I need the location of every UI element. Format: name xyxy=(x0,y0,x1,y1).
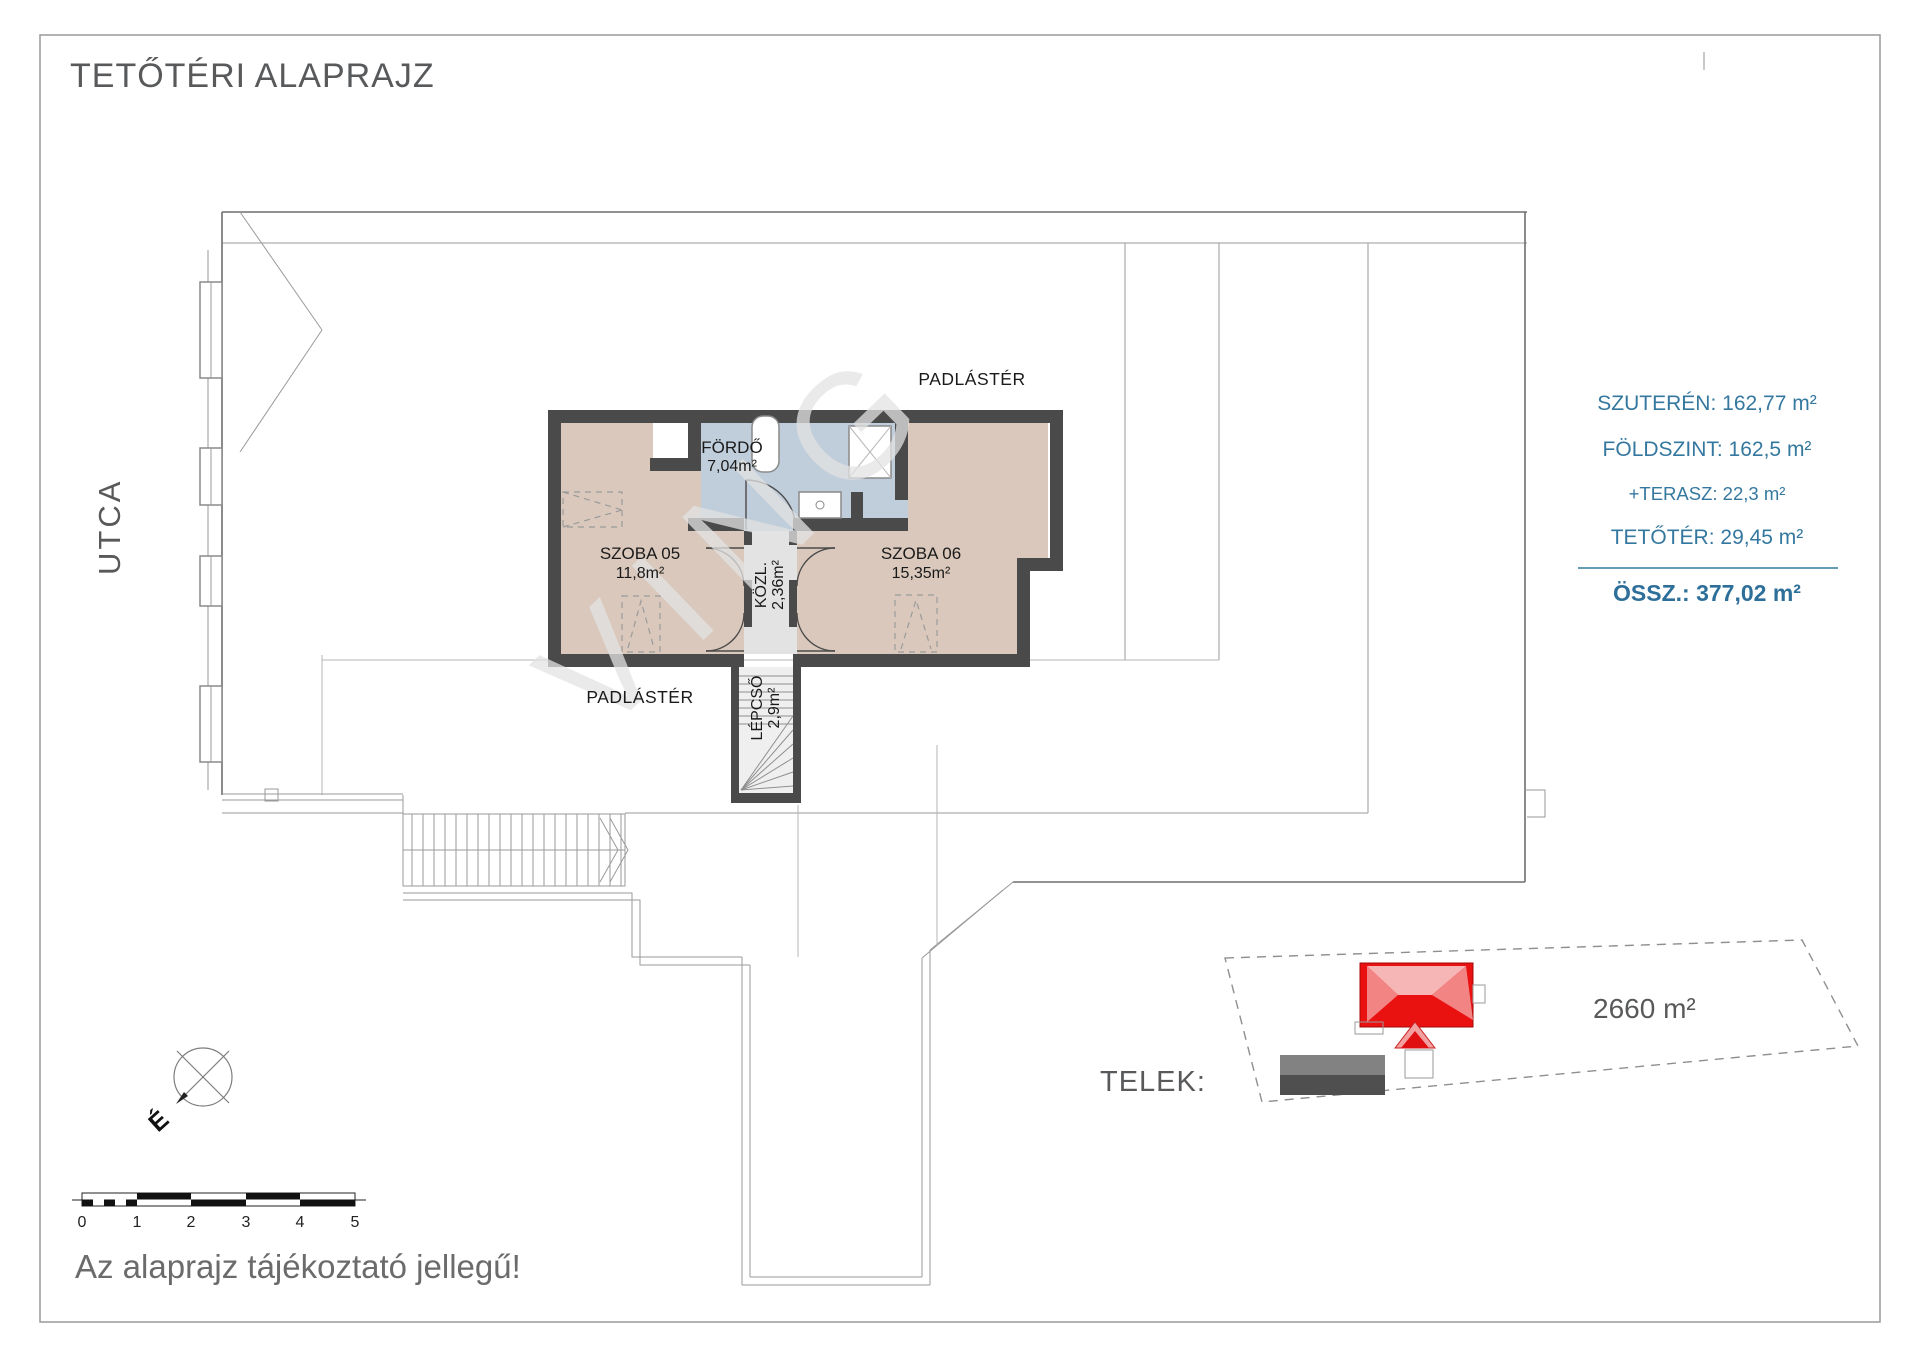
room-lepcso-area: 2,9m² xyxy=(766,687,783,729)
outdoor-stairs xyxy=(403,795,628,886)
street-label: UTCA xyxy=(92,479,127,575)
svg-text:2: 2 xyxy=(187,1214,196,1231)
scale-labels: 0 1 2 3 4 5 xyxy=(78,1214,360,1231)
site-label: TELEK: xyxy=(1100,1066,1206,1098)
attic-label-top: PADLÁSTÉR xyxy=(918,369,1025,389)
outbuilding-icon xyxy=(1280,1055,1385,1095)
room-bath-name: FÖRDŐ xyxy=(701,438,762,457)
room-szoba05-area: 11,8m² xyxy=(616,565,665,582)
page-title: TETŐTÉRI ALAPRAJZ xyxy=(70,57,435,95)
summary-tetoter: TETŐTÉR: 29,45 m² xyxy=(1611,526,1804,549)
attic-label-bottom: PADLÁSTÉR xyxy=(586,687,693,707)
floor-plan-drawing: VING FÖRDŐ 7,04m² SZOBA 05 11,8m² SZOBA … xyxy=(0,0,1920,1357)
site-plan: TELEK: 2660 m² xyxy=(1100,940,1858,1102)
svg-text:3: 3 xyxy=(242,1214,251,1231)
room-szoba05-name: SZOBA 05 xyxy=(600,544,680,563)
compass-north-label: É xyxy=(143,1105,175,1138)
compass-icon: É xyxy=(143,1048,232,1137)
room-kozl-name: KÖZL. xyxy=(752,562,770,608)
summary-foldszint: FÖLDSZINT: 162,5 m² xyxy=(1603,438,1812,461)
disclaimer-text: Az alaprajz tájékoztató jellegű! xyxy=(75,1248,521,1285)
page-border xyxy=(40,35,1880,1322)
floor-plan-page: VING FÖRDŐ 7,04m² SZOBA 05 11,8m² SZOBA … xyxy=(0,0,1920,1357)
area-summary: SZUTERÉN: 162,77 m² FÖLDSZINT: 162,5 m² … xyxy=(1578,392,1838,606)
scale-bar: 0 1 2 3 4 5 xyxy=(72,1193,366,1231)
room-szoba06-name: SZOBA 06 xyxy=(881,544,961,563)
summary-terasz: +TERASZ: 22,3 m² xyxy=(1629,483,1786,504)
svg-text:5: 5 xyxy=(351,1214,360,1231)
summary-szuteren: SZUTERÉN: 162,77 m² xyxy=(1597,392,1816,415)
summary-total: ÖSSZ.: 377,02 m² xyxy=(1613,580,1801,606)
stray-mark xyxy=(1703,52,1705,70)
room-stair-fill xyxy=(739,667,793,795)
site-area: 2660 m² xyxy=(1593,993,1696,1024)
left-window-symbols xyxy=(200,282,222,762)
room-kozl-area: 2,36m² xyxy=(770,559,787,609)
room-szoba06-area: 15,35m² xyxy=(892,565,951,582)
room-bath-area: 7,04m² xyxy=(707,458,757,475)
room-lepcso-name: LÉPCSŐ xyxy=(747,676,766,741)
svg-text:0: 0 xyxy=(78,1214,87,1231)
svg-text:1: 1 xyxy=(133,1214,142,1231)
svg-text:4: 4 xyxy=(296,1214,305,1231)
